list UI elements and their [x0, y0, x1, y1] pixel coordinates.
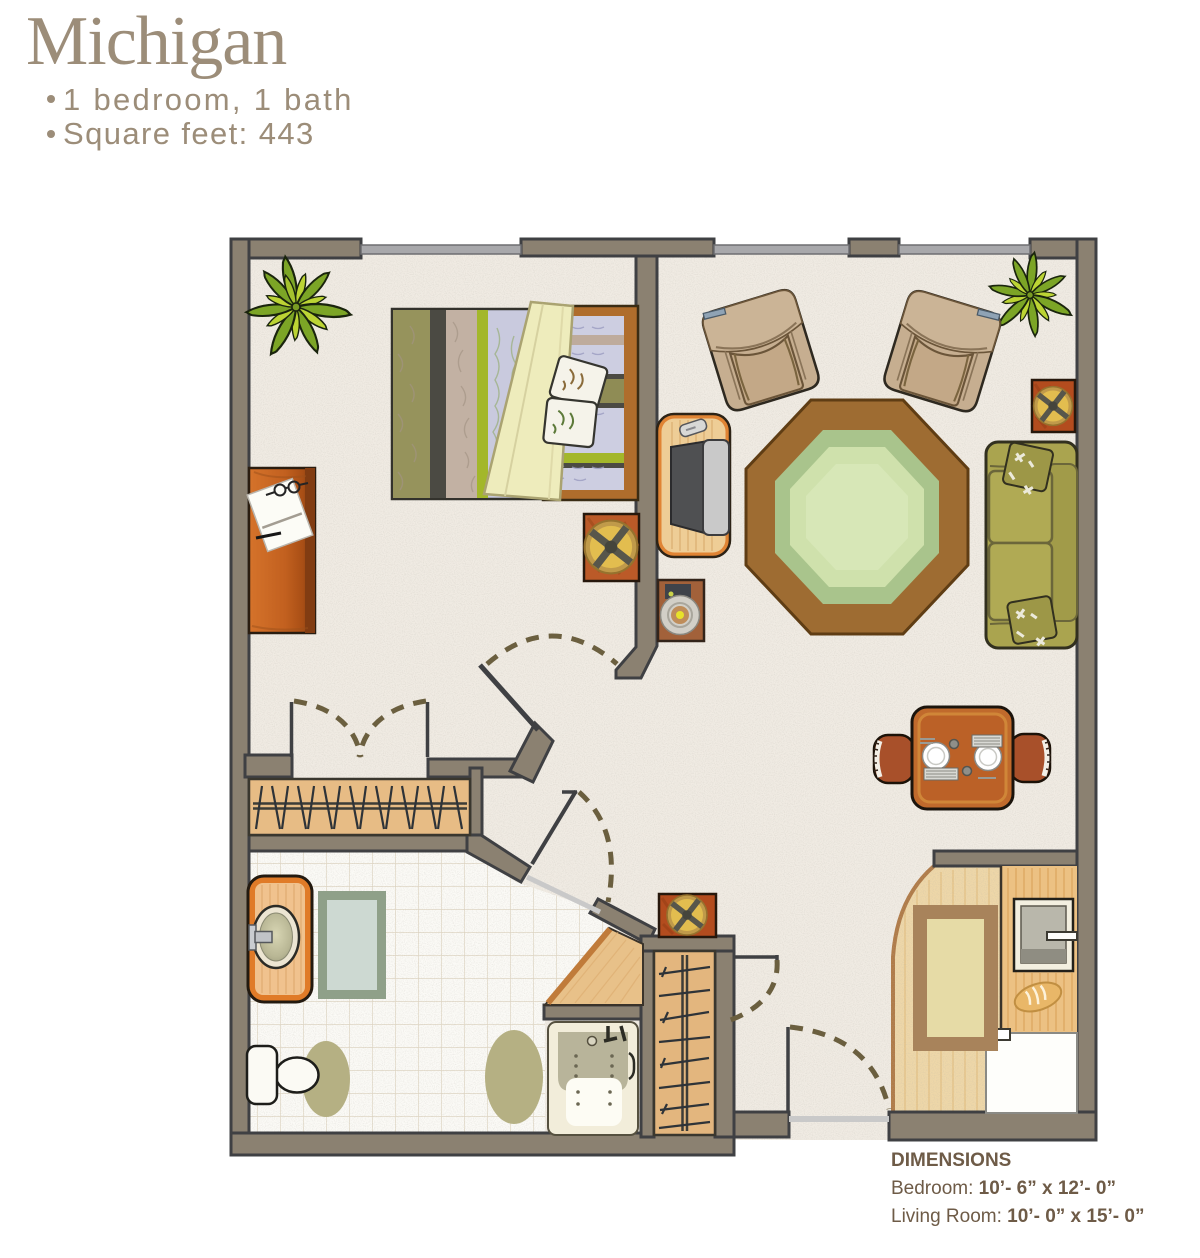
svg-text:DIMENSIONS: DIMENSIONS: [891, 1150, 1011, 1171]
svg-text:Bedroom: 10’- 6” x 12’- 0”: Bedroom: 10’- 6” x 12’- 0”: [891, 1178, 1116, 1199]
svg-text:Square feet: 443: Square feet: 443: [63, 116, 315, 151]
svg-text:Michigan: Michigan: [26, 3, 286, 80]
svg-text:1 bedroom, 1 bath: 1 bedroom, 1 bath: [63, 82, 354, 117]
svg-text:Living Room: 10’- 0” x 15’- 0”: Living Room: 10’- 0” x 15’- 0”: [891, 1206, 1144, 1227]
